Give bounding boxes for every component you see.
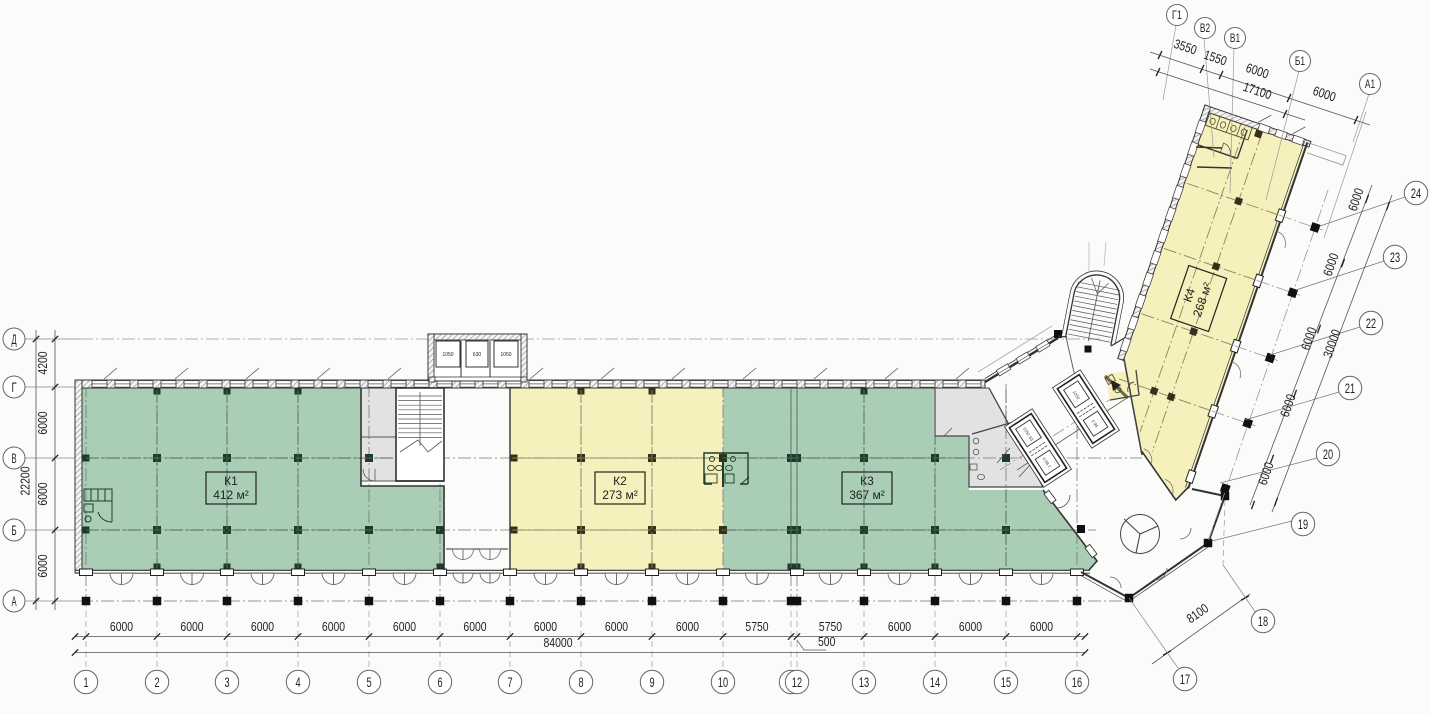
svg-text:14: 14 <box>930 674 940 690</box>
svg-text:22: 22 <box>1366 315 1376 331</box>
svg-text:19: 19 <box>1298 516 1308 532</box>
svg-text:1: 1 <box>83 674 88 690</box>
svg-text:24: 24 <box>1411 185 1421 201</box>
svg-text:6000: 6000 <box>251 619 274 634</box>
svg-text:6000: 6000 <box>180 619 203 634</box>
svg-text:500: 500 <box>818 634 835 649</box>
svg-text:6000: 6000 <box>110 619 133 634</box>
svg-text:Г1: Г1 <box>1172 8 1182 22</box>
svg-text:367 м²: 367 м² <box>849 488 885 502</box>
svg-text:5: 5 <box>366 674 371 690</box>
svg-text:А1: А1 <box>1365 77 1375 91</box>
svg-text:1050: 1050 <box>442 352 453 358</box>
svg-text:К3: К3 <box>860 474 874 488</box>
svg-text:5750: 5750 <box>819 619 842 634</box>
svg-text:22200: 22200 <box>18 467 33 496</box>
svg-text:84000: 84000 <box>544 635 573 650</box>
svg-text:В2: В2 <box>1200 21 1210 35</box>
svg-text:18: 18 <box>1258 613 1268 629</box>
svg-text:Г: Г <box>11 379 16 395</box>
svg-text:23: 23 <box>1390 249 1400 265</box>
svg-text:1050: 1050 <box>500 352 511 358</box>
svg-text:2: 2 <box>154 674 159 690</box>
svg-text:6000: 6000 <box>959 619 982 634</box>
svg-text:21: 21 <box>1345 380 1355 396</box>
svg-text:6000: 6000 <box>888 619 911 634</box>
svg-text:7: 7 <box>507 674 512 690</box>
svg-text:13: 13 <box>859 674 869 690</box>
svg-text:В1: В1 <box>1230 31 1240 45</box>
svg-text:6000: 6000 <box>35 482 50 505</box>
svg-text:5750: 5750 <box>745 619 768 634</box>
svg-text:6000: 6000 <box>393 619 416 634</box>
svg-text:17: 17 <box>1180 671 1190 687</box>
svg-text:20: 20 <box>1323 446 1333 462</box>
svg-text:630: 630 <box>473 352 482 358</box>
svg-text:6000: 6000 <box>534 619 557 634</box>
svg-text:15: 15 <box>1001 674 1011 690</box>
svg-text:А: А <box>11 593 16 609</box>
svg-text:10: 10 <box>718 674 728 690</box>
svg-text:6000: 6000 <box>676 619 699 634</box>
svg-text:6000: 6000 <box>463 619 486 634</box>
svg-text:9: 9 <box>649 674 654 690</box>
svg-text:Д: Д <box>11 331 16 347</box>
svg-text:Б: Б <box>11 522 16 538</box>
svg-text:Б1: Б1 <box>1295 54 1305 68</box>
svg-text:6000: 6000 <box>605 619 628 634</box>
svg-text:6000: 6000 <box>35 411 50 434</box>
svg-text:3: 3 <box>224 674 229 690</box>
svg-text:К2: К2 <box>613 474 627 488</box>
svg-text:4200: 4200 <box>35 351 50 374</box>
svg-text:4: 4 <box>295 674 300 690</box>
svg-text:16: 16 <box>1072 674 1082 690</box>
svg-text:8: 8 <box>578 674 583 690</box>
svg-text:6: 6 <box>437 674 442 690</box>
svg-text:412 м²: 412 м² <box>213 488 249 502</box>
svg-text:6000: 6000 <box>35 554 50 577</box>
svg-text:6000: 6000 <box>322 619 345 634</box>
svg-text:273 м²: 273 м² <box>602 488 638 502</box>
svg-text:К1: К1 <box>224 474 238 488</box>
svg-text:6000: 6000 <box>1030 619 1053 634</box>
svg-text:12: 12 <box>792 674 802 690</box>
svg-text:В: В <box>11 450 16 466</box>
